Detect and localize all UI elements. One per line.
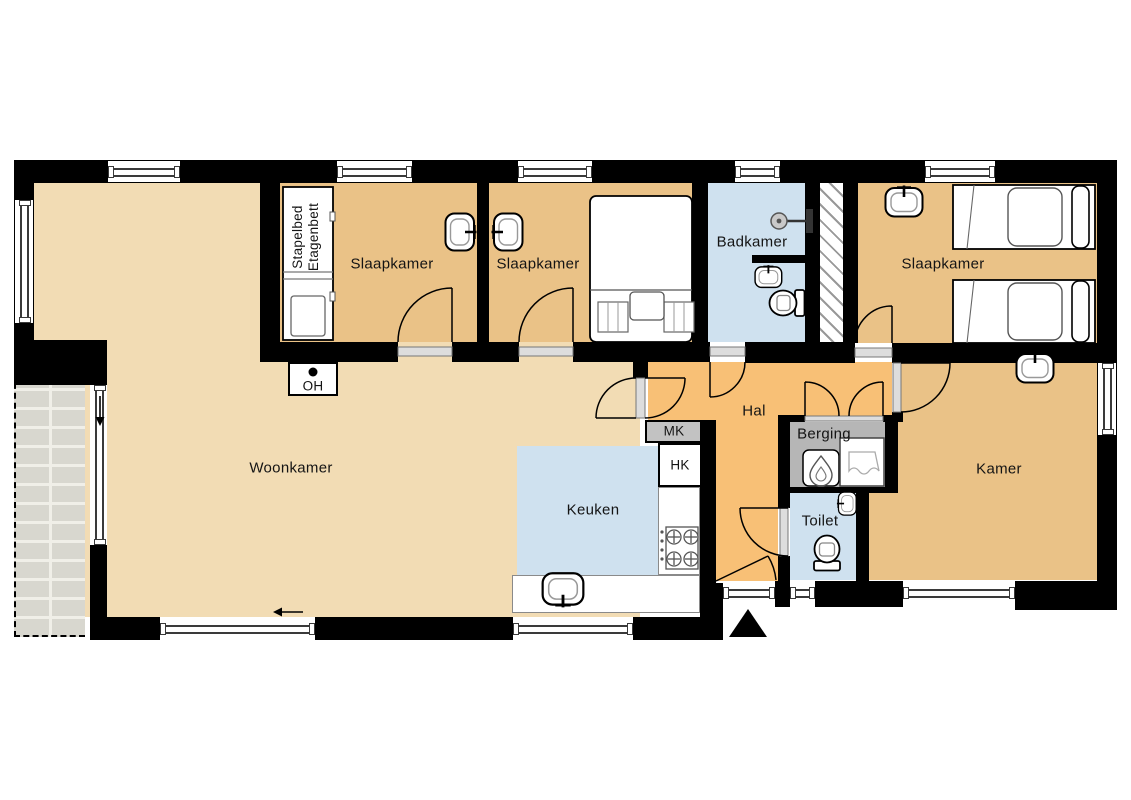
wall bbox=[90, 617, 160, 640]
wall bbox=[573, 342, 710, 362]
wall bbox=[892, 343, 1097, 363]
window bbox=[513, 618, 633, 639]
room-label-kamer: Kamer bbox=[976, 461, 1022, 478]
room-label-woonkamer: Woonkamer bbox=[249, 460, 332, 477]
shaft-hatched-area bbox=[820, 183, 843, 343]
kitchen-appliance-column bbox=[658, 487, 700, 575]
label-mk: MK bbox=[664, 424, 685, 439]
room-label-slaapkamer3: Slaapkamer bbox=[901, 256, 984, 273]
wall bbox=[883, 415, 898, 422]
wall bbox=[700, 583, 723, 640]
wall bbox=[856, 493, 869, 581]
room-label-badkamer: Badkamer bbox=[717, 234, 788, 251]
entrance-door bbox=[723, 582, 775, 603]
wall bbox=[477, 183, 489, 342]
wall bbox=[843, 343, 855, 363]
room-label-keuken: Keuken bbox=[567, 502, 620, 519]
wall bbox=[778, 415, 790, 508]
entrance-marker bbox=[729, 609, 767, 637]
window bbox=[15, 200, 33, 323]
wall bbox=[775, 581, 790, 607]
label-bunk-line1: Stapelbed bbox=[290, 203, 306, 271]
room-label-berging: Berging bbox=[797, 426, 851, 443]
wall bbox=[815, 581, 903, 607]
kitchen-counter bbox=[512, 575, 700, 613]
sliding-door-garden bbox=[160, 618, 315, 639]
wall bbox=[633, 617, 700, 640]
sliding-door-terrace bbox=[90, 385, 107, 545]
floor-plan: Woonkamer Slaapkamer Slaapkamer Badkamer… bbox=[0, 0, 1131, 800]
label-bunk-line2: Etagenbett bbox=[306, 203, 322, 271]
window-kamer bbox=[903, 582, 1015, 603]
room-kamer-floor-ext bbox=[869, 493, 903, 580]
wall bbox=[885, 422, 898, 493]
window bbox=[108, 161, 180, 182]
room-label-slaapkamer2: Slaapkamer bbox=[496, 256, 579, 273]
wall-badkamer-partition bbox=[752, 255, 805, 263]
window bbox=[735, 161, 780, 182]
wall bbox=[633, 362, 648, 378]
room-hal-floor-corridor bbox=[716, 420, 778, 581]
wall bbox=[260, 183, 280, 342]
window bbox=[925, 161, 995, 182]
wall bbox=[692, 183, 708, 342]
wall bbox=[745, 342, 843, 363]
wall bbox=[790, 487, 885, 493]
window bbox=[518, 161, 592, 182]
room-label-toilet: Toilet bbox=[802, 513, 839, 530]
wall bbox=[452, 342, 519, 362]
wall bbox=[315, 617, 513, 640]
window-kamer-east bbox=[1098, 363, 1116, 435]
room-hal-floor-top bbox=[648, 362, 892, 420]
window-toilet bbox=[790, 582, 815, 603]
wall bbox=[843, 183, 858, 343]
wall bbox=[700, 420, 716, 583]
wall bbox=[14, 340, 107, 385]
room-label-hal: Hal bbox=[742, 403, 765, 420]
wall bbox=[805, 183, 820, 343]
window bbox=[337, 161, 412, 182]
terrace-brick-area bbox=[14, 363, 85, 637]
wall bbox=[778, 556, 790, 581]
label-oh: OH bbox=[303, 379, 324, 394]
label-bunk-bed: Stapelbed Etagenbett bbox=[290, 203, 322, 271]
room-label-slaapkamer1: Slaapkamer bbox=[350, 256, 433, 273]
room-toilet-floor bbox=[790, 493, 856, 580]
label-hk: HK bbox=[670, 458, 689, 473]
wall bbox=[260, 342, 398, 362]
